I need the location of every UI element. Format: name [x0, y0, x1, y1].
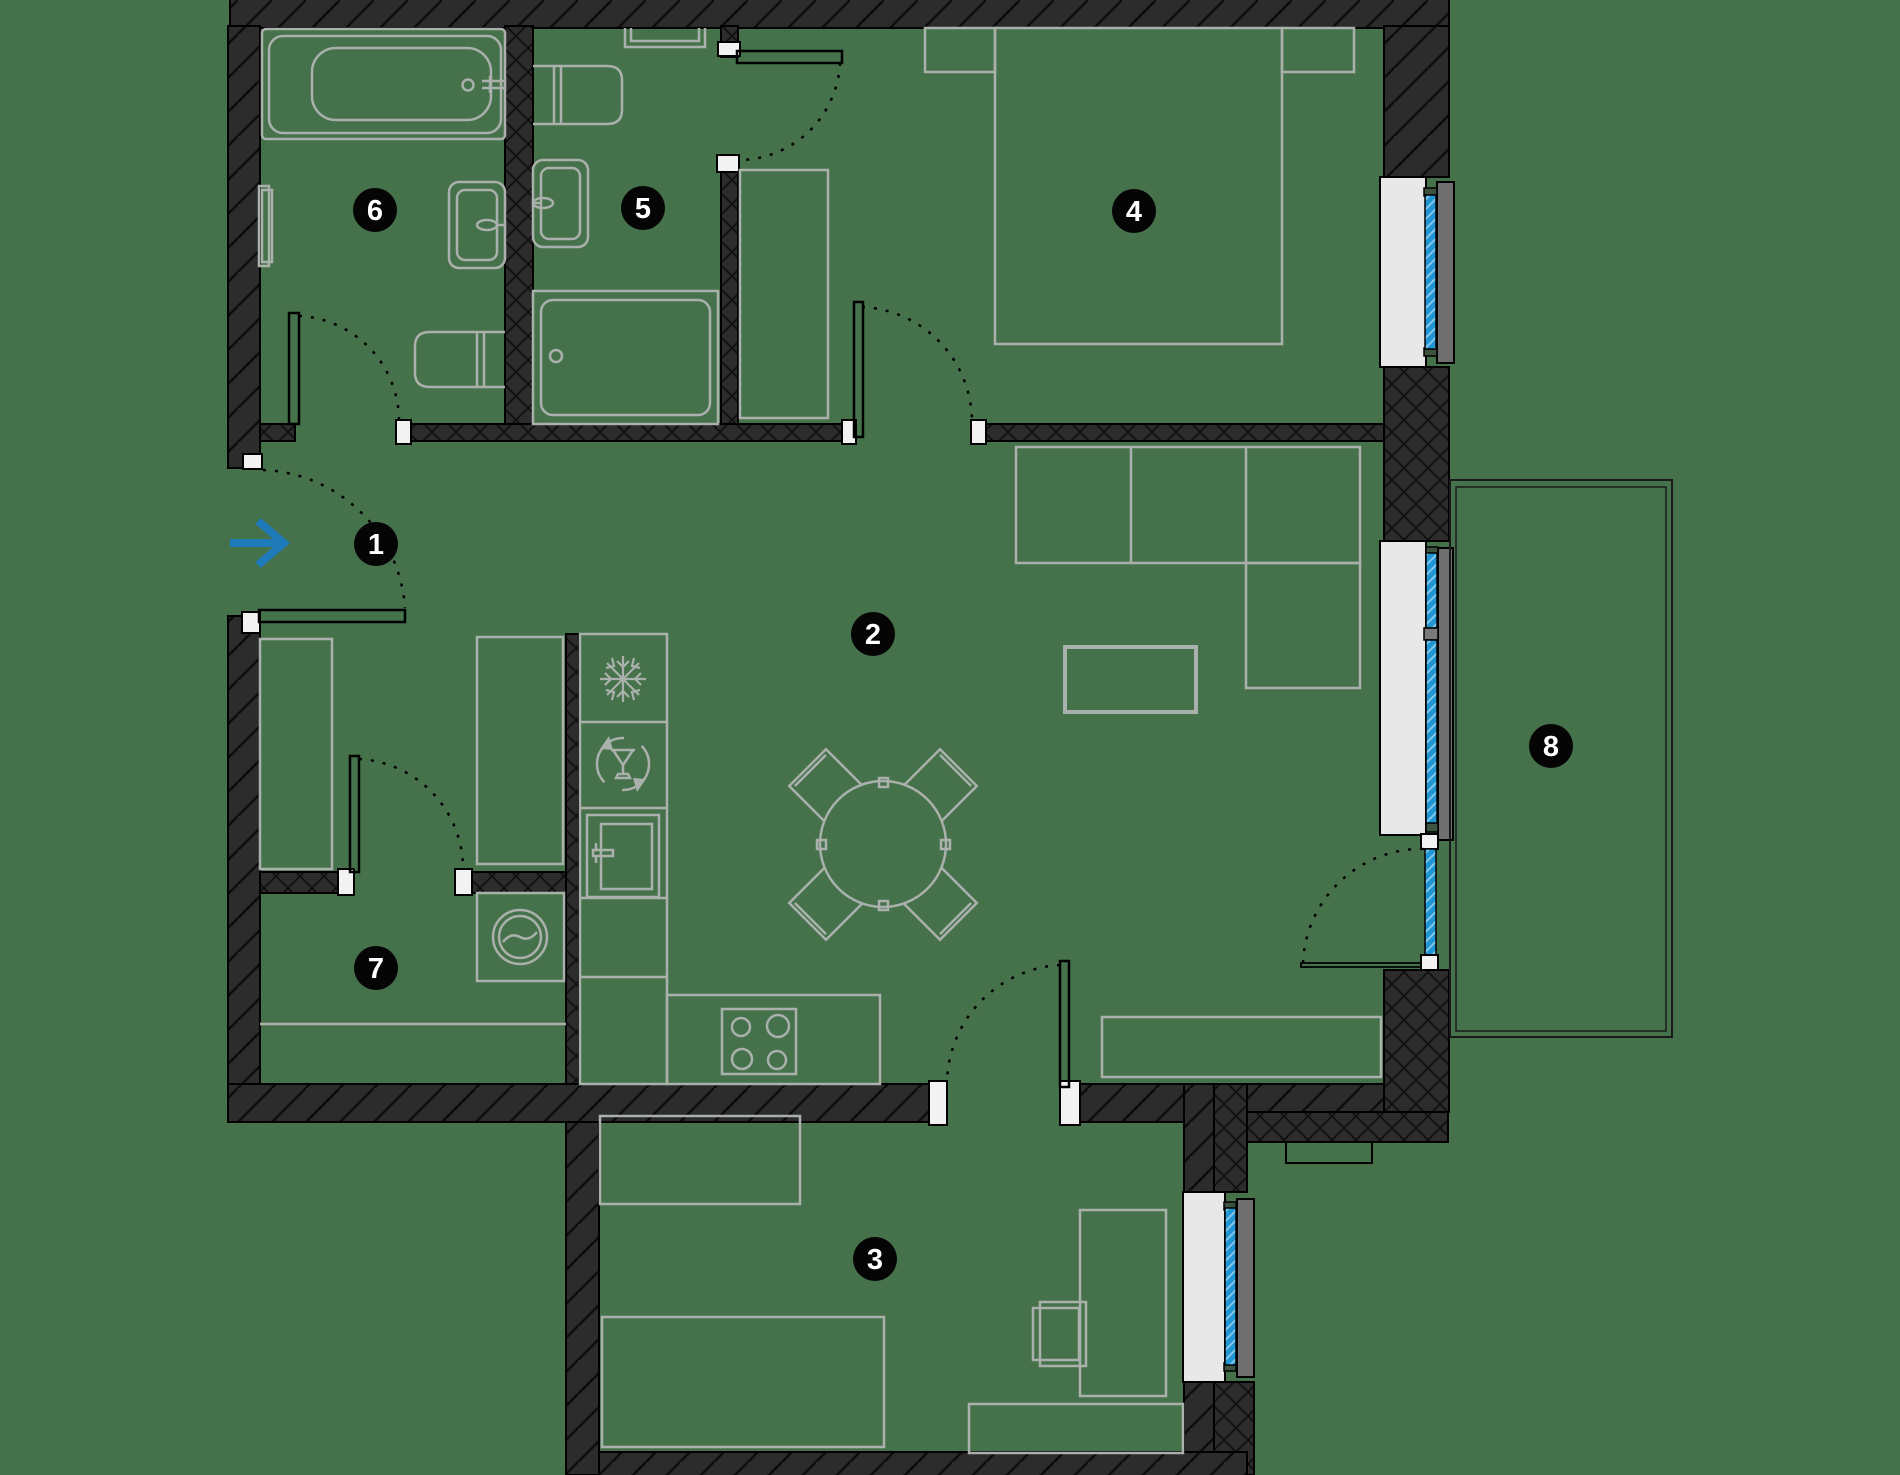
svg-text:4: 4 [1126, 196, 1142, 228]
svg-text:2: 2 [865, 619, 881, 651]
svg-text:6: 6 [367, 195, 383, 227]
svg-text:3: 3 [867, 1244, 883, 1276]
svg-text:7: 7 [368, 953, 384, 985]
svg-text:5: 5 [635, 193, 651, 225]
svg-text:1: 1 [368, 529, 384, 561]
svg-text:8: 8 [1543, 731, 1559, 763]
